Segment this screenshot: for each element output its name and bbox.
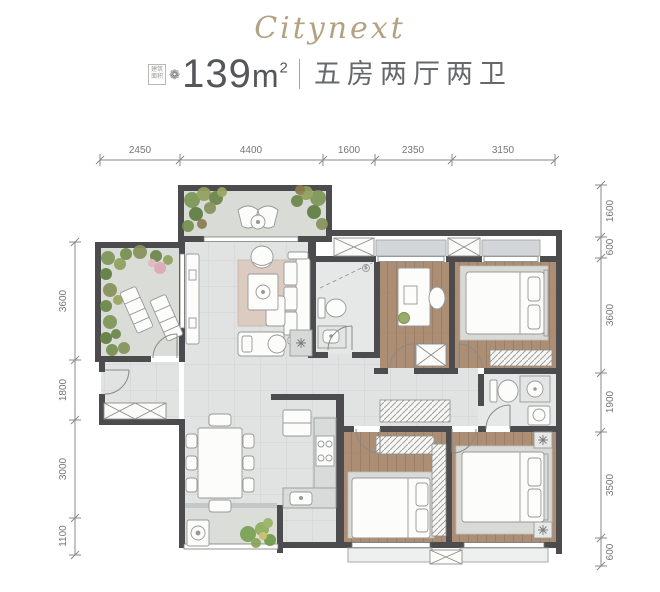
bay-sill-north1	[376, 240, 446, 256]
bay-window-south1	[348, 548, 432, 562]
toilet1	[318, 298, 346, 318]
entry-shoe-cabinet	[104, 403, 166, 419]
balcony-chair-set	[238, 206, 278, 229]
dim-left-4: 1100	[58, 525, 69, 547]
washing-machine	[187, 520, 209, 546]
dim-left-3: 3000	[58, 457, 69, 480]
tv-console	[186, 254, 199, 344]
washer2	[528, 406, 550, 425]
bed-s	[352, 478, 430, 538]
dim-right-3: 3600	[605, 303, 616, 326]
armchair	[251, 246, 273, 268]
plant-stand-living	[290, 330, 312, 356]
bedroom-ne-window	[484, 257, 538, 262]
wardrobe-ne	[490, 350, 552, 366]
dim-top-3: 1600	[338, 145, 361, 156]
dim-left-2: 1800	[58, 378, 69, 401]
bench	[238, 332, 286, 356]
bed-ne	[466, 270, 548, 336]
plant-stand-se1	[534, 432, 552, 448]
bedroom-s-window	[352, 543, 430, 548]
desk-chair	[429, 287, 445, 309]
study-cabinet	[416, 344, 446, 366]
bay-sill-north2	[482, 240, 540, 256]
vanity2	[520, 376, 550, 402]
ac-box-south	[430, 550, 462, 564]
bay-window-south2	[460, 548, 548, 562]
dim-top-5: 3150	[492, 145, 515, 156]
study-window	[378, 257, 444, 262]
dim-top-2: 4400	[240, 145, 263, 156]
toilet2	[490, 380, 518, 402]
wardrobe-tall	[432, 444, 446, 536]
dim-top-4: 2350	[402, 145, 425, 156]
dim-right-4: 1900	[605, 390, 616, 413]
bed-se	[462, 452, 548, 522]
dim-right-2: 600	[605, 238, 616, 255]
stove	[316, 436, 334, 466]
dim-right-5: 3500	[605, 473, 616, 496]
living-balcony-window	[204, 237, 298, 242]
coffee-table	[248, 274, 278, 310]
wardrobe-s	[376, 436, 434, 454]
dim-top-1: 2450	[129, 145, 152, 156]
bedroom-se-window	[464, 543, 544, 548]
ac-box-north1	[334, 238, 374, 256]
ac-box-north2	[448, 238, 480, 256]
plant-stand-se2	[534, 522, 552, 538]
dim-right-1: 1600	[605, 199, 616, 222]
terrace-window	[180, 254, 185, 328]
dim-right-6: 600	[605, 543, 616, 560]
floorplan-drawing: 2450 4400 1600 2350 3150 3600 1800 3000 …	[0, 0, 660, 592]
desk-plant	[399, 313, 410, 324]
wardrobe-corridor	[380, 400, 450, 422]
dim-left-1: 3600	[58, 289, 69, 312]
floorplan-page: Citynext 建筑 面积 ❁ 139m2 五房两厅两卫	[0, 0, 660, 592]
